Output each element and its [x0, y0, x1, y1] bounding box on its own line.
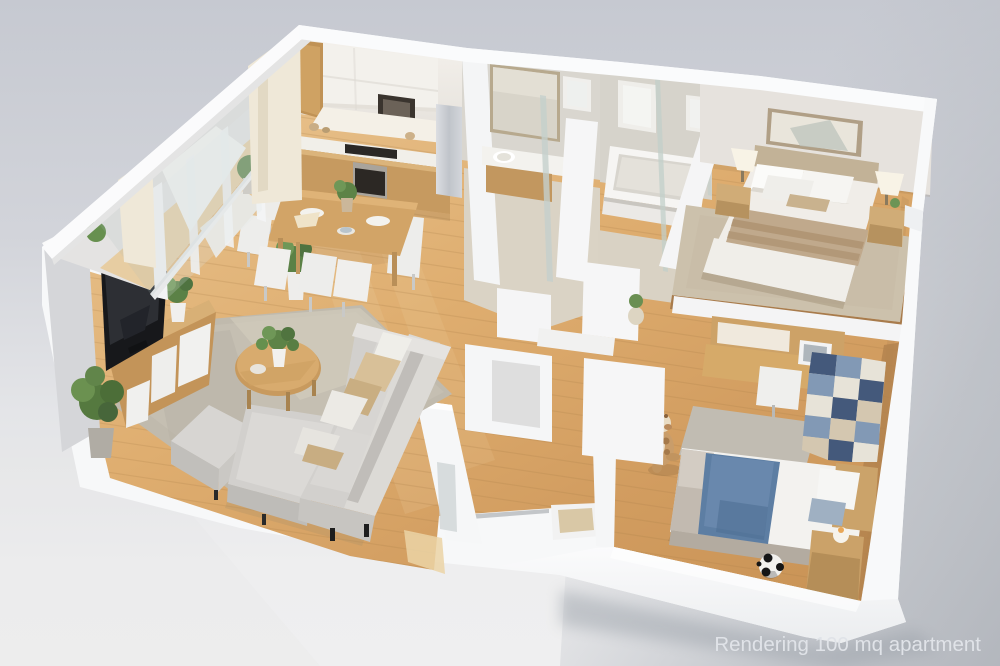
- svg-text:Rendering 100 mq apartment: Rendering 100 mq apartment: [714, 633, 981, 656]
